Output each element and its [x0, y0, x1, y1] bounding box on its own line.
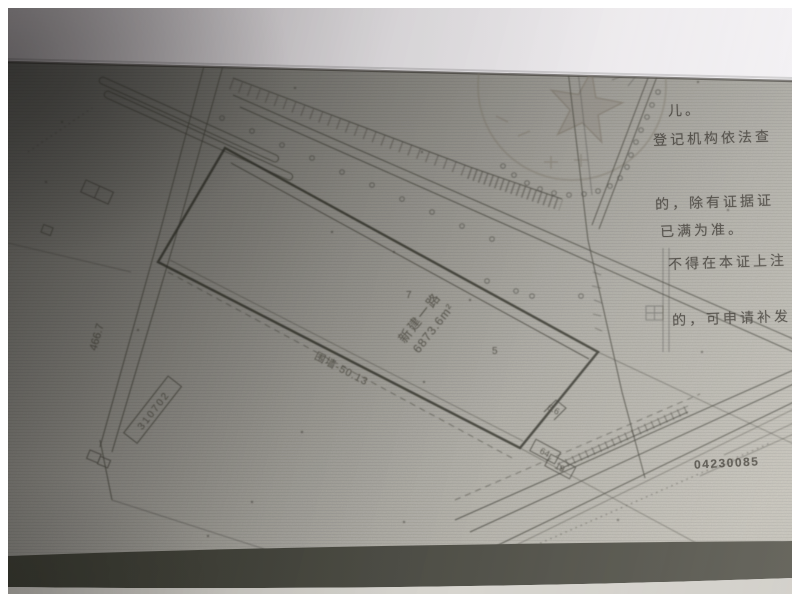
certificate-text-line: 已满为准。 [660, 219, 746, 242]
certificate-text-line: 儿。 [668, 99, 703, 120]
certificate-text-line: 登记机构依法查 [653, 126, 773, 150]
certificate-text-line: 的，可申请补发 [672, 306, 792, 330]
spot-label-a: 5 [492, 346, 498, 357]
certificate-text-line: 的，除有证据证 [655, 190, 775, 214]
spot-label-b: 7 [406, 290, 412, 301]
certificate-text-line: 不得在本证上注 [668, 250, 788, 274]
document-photo: 新建一路 6873.6m² 466.7 310702 围墙-50.13 6.6 … [8, 8, 792, 594]
site-plan-page: 新建一路 6873.6m² 466.7 310702 围墙-50.13 6.6 … [8, 8, 792, 594]
